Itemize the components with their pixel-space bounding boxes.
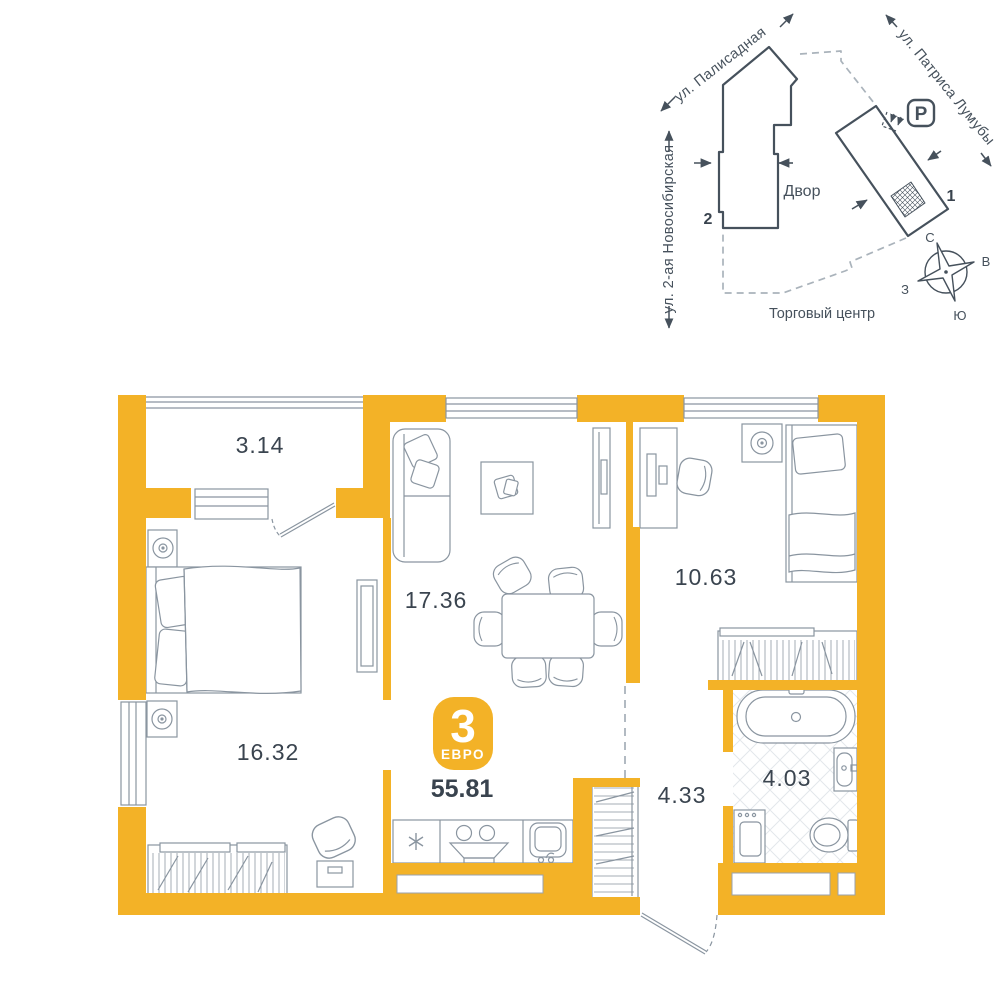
window-bedroom-small: [684, 398, 818, 418]
double-bed: [146, 566, 301, 693]
entry-arrow-icon: [928, 151, 941, 160]
wall-bottom-right: [718, 897, 885, 915]
tv-dresser: [357, 580, 377, 672]
badge-rooms-count: 3: [450, 700, 476, 752]
badge-type: ЕВРО: [441, 747, 485, 762]
courtyard-label: Двор: [784, 183, 821, 200]
room-label-living: 17.36: [405, 587, 468, 613]
building-1: 1: [836, 106, 956, 236]
window-bedroom-big: [121, 702, 146, 805]
sofa: [393, 429, 450, 562]
room-label-hall: 4.33: [658, 782, 707, 808]
wall-living-bedroom2-upper: [626, 422, 633, 527]
compass-east: В: [982, 254, 991, 269]
nightstand-lamp: [148, 530, 177, 567]
wall-closet-top: [573, 778, 640, 787]
single-bed: [786, 425, 857, 582]
armchair: [309, 813, 360, 862]
building-1-label: 1: [947, 188, 956, 205]
wall-right: [857, 395, 885, 915]
wall-bottom-left: [118, 893, 383, 915]
vent-box: [742, 424, 782, 462]
compass-icon: С В З Ю: [901, 230, 990, 323]
floor-plan: 3.14 17.36 10.63 16.32 4.33 4.03 3 ЕВРО …: [118, 395, 885, 954]
balcony-door: [272, 503, 335, 537]
wardrobe-bedroom-big: [148, 843, 287, 895]
room-label-bedroom-small: 10.63: [675, 564, 738, 590]
wall-balcony-right: [363, 395, 390, 490]
floorplan-page: 2 1 P ул. Палисадная ул. Патриса Лумубы: [0, 0, 1000, 1000]
wall-bedroom2-bottom: [708, 680, 857, 690]
balcony-glazing: [146, 397, 363, 408]
total-area: 55.81: [431, 775, 494, 803]
washing-machine: [734, 810, 765, 863]
building-2-label: 2: [704, 211, 713, 228]
desk-chair: [675, 457, 713, 498]
entrance-door: [641, 913, 717, 954]
tv-stand: [593, 428, 610, 528]
wall-closet-left: [573, 778, 592, 915]
wall-bathroom-left-lower: [723, 806, 733, 871]
coffee-table: [481, 462, 533, 514]
room-label-balcony: 3.14: [236, 432, 285, 458]
apartment-badge: 3 ЕВРО 55.81: [431, 697, 494, 803]
desk: [640, 428, 677, 528]
site-plan: 2 1 P ул. Палисадная ул. Патриса Лумубы: [661, 14, 998, 328]
wall-left-upper: [118, 395, 146, 700]
side-table: [317, 861, 353, 887]
svg-text:ул. 2-ая Новосибирская: ул. 2-ая Новосибирская: [661, 145, 677, 314]
street-novosibirskaya: ул. 2-ая Новосибирская: [661, 131, 677, 328]
room-label-bathroom: 4.03: [763, 765, 812, 791]
wall-balcony-step: [336, 488, 390, 518]
wall-top-2: [577, 395, 684, 422]
parking-letter: P: [915, 104, 928, 125]
compass-north: С: [925, 230, 934, 245]
entry-arrow-icon: [852, 200, 867, 209]
bathroom-sink: [834, 748, 857, 791]
hall-closet: [592, 780, 638, 898]
wall-bathroom-left-upper: [723, 690, 733, 752]
balcony-cabinet: [195, 489, 268, 519]
compass-west: З: [901, 282, 909, 297]
niche-bath-2: [838, 873, 855, 895]
toilet: [810, 818, 858, 852]
furniture: [146, 424, 858, 898]
window-living: [446, 398, 577, 418]
mall-label: Торговый центр: [769, 306, 875, 322]
floorplan-svg: 2 1 P ул. Палисадная ул. Патриса Лумубы: [0, 0, 1000, 1000]
nightstand-lamp: [147, 701, 177, 737]
wall-bedroom-living-lower: [383, 770, 391, 871]
niche-kitchen: [397, 875, 543, 893]
dining-table: [502, 594, 594, 658]
wall-living-bedroom2-lower: [626, 527, 640, 683]
wall-bedroom-living-upper: [383, 518, 391, 700]
dining-table-set: [474, 554, 622, 688]
room-label-bedroom-big: 16.32: [237, 739, 300, 765]
wardrobe-bedroom-small: [718, 628, 857, 682]
compass-south: Ю: [953, 308, 966, 323]
svg-text:ул. Патриса Лумубы: ул. Патриса Лумубы: [895, 26, 998, 148]
wall-balcony-left-step: [146, 488, 191, 518]
niche-bath-1: [732, 873, 830, 895]
bathtub: [737, 688, 855, 743]
